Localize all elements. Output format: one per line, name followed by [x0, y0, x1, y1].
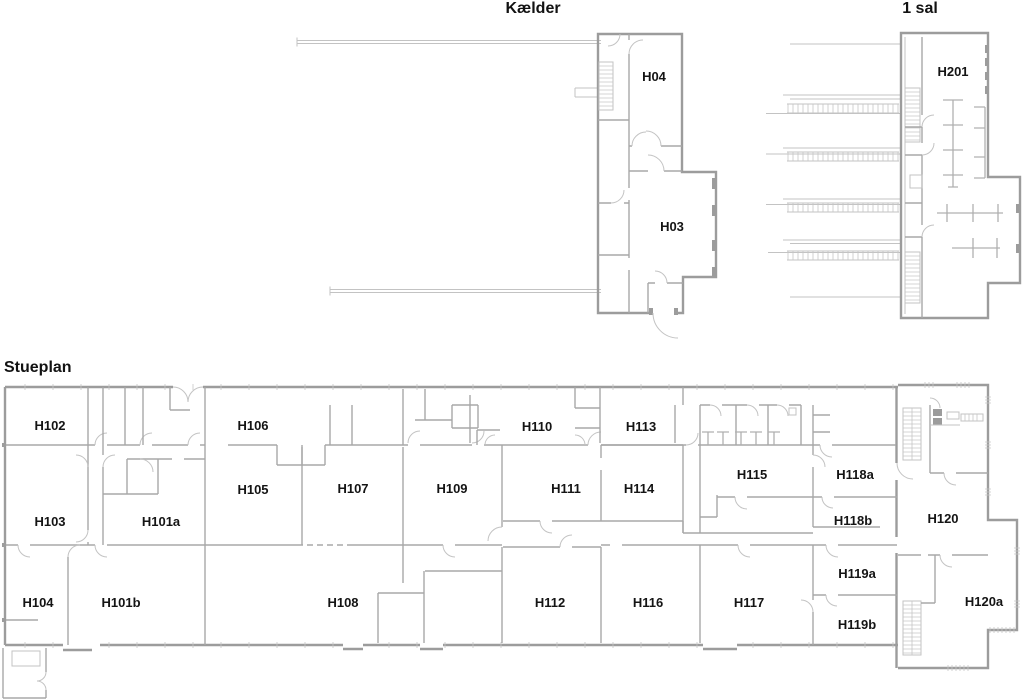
kaelder-stairs-icon: [599, 62, 613, 110]
first-floor-stairs-bottom-icon: [905, 252, 920, 303]
room-label-h04: H04: [642, 69, 667, 84]
wing-stairs-bottom-icon: [903, 601, 921, 655]
room-label-h114: H114: [624, 481, 655, 496]
stueplan-plan: H102 H106 H110 H113 H105 H107 H109 H111 …: [2, 382, 1020, 698]
kaelder-plan: H04 H03: [297, 34, 717, 338]
room-label-h117: H117: [734, 595, 764, 610]
h201-fixtures: [937, 100, 1003, 258]
room-label-h104: H104: [22, 595, 54, 610]
room-label-h103: H103: [34, 514, 65, 529]
room-label-h118a: H118a: [836, 467, 874, 482]
room-label-h115: H115: [737, 467, 767, 482]
wing-stairs-top-icon: [903, 408, 921, 460]
room-label-h106: H106: [237, 418, 268, 433]
room-label-h107: H107: [337, 481, 368, 496]
room-label-h03: H03: [660, 219, 684, 234]
room-label-h109: H109: [436, 481, 467, 496]
room-label-h110: H110: [522, 419, 552, 434]
first-floor-windows: [985, 45, 1020, 253]
annex-room: [3, 648, 46, 698]
room-label-h119b: H119b: [838, 617, 876, 632]
room-label-h119a: H119a: [838, 566, 876, 581]
room-label-h116: H116: [633, 595, 663, 610]
toilet-block: [700, 405, 830, 445]
room-label-h102: H102: [34, 418, 65, 433]
room-label-h105: H105: [237, 482, 268, 497]
room-label-h201: H201: [937, 64, 968, 79]
room-label-h108: H108: [327, 595, 358, 610]
floor-plan-sheet: Kælder 1 sal Stueplan: [0, 0, 1024, 700]
room-label-h120: H120: [927, 511, 958, 526]
room-label-h118b: H118b: [834, 513, 872, 528]
stueplan-wing-outline: [898, 385, 1017, 668]
room-label-h113: H113: [626, 419, 656, 434]
wing-toilets: [930, 398, 983, 473]
room-label-h101a: H101a: [142, 514, 181, 529]
room-label-h101b: H101b: [101, 595, 140, 610]
deck-hatch-strips: [787, 104, 899, 260]
room-label-h112: H112: [535, 595, 565, 610]
first-floor-plan: H201: [766, 33, 1020, 318]
first-floor-stairs-top-icon: [905, 88, 920, 142]
room-label-h120a: H120a: [965, 594, 1004, 609]
room-label-h111: H111: [551, 481, 581, 496]
floor-plan-drawing: H04 H03: [0, 0, 1024, 700]
